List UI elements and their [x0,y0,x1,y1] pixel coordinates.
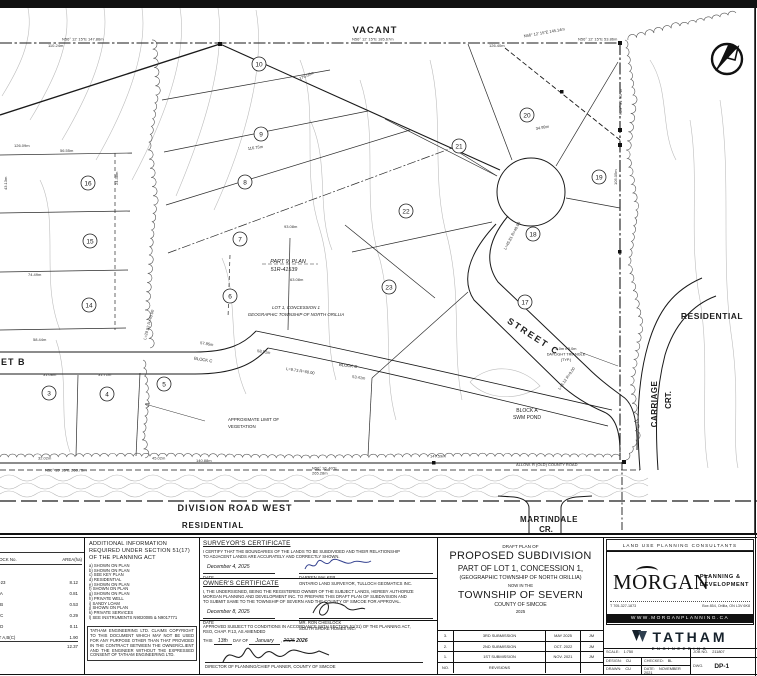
morgan-address: Box 854, Orillia, ON L3V 6K8 [702,604,750,608]
owner-body-2: MORGAN PLANNING AND DEVELOPMENT INC. TO … [203,594,407,599]
dimension-label: N56° 12' 15"E 185.67m [352,37,394,42]
revision-header-row: NO. REVISIONS [438,663,603,674]
street-b-label: STREET B [0,357,26,367]
lot-number-label: 21 [455,143,463,150]
revision-date: NOV. 2021 [546,652,581,662]
morgan-logo-box: MORGAN PLANNING & DEVELOPMENT T 705-327-… [606,551,754,625]
dimension-label: 31.71m [98,372,112,377]
certificates-panel: SURVEYOR'S CERTIFICATE I CERTIFY THAT TH… [200,538,438,674]
surveyor-body-1: I CERTIFY THAT THE BOUNDARIES OF THE LAN… [203,549,400,554]
revision-no-header: NO. [438,663,454,674]
revision-desc-header: REVISIONS [454,663,546,674]
dimension-label: 56.55m [60,148,74,153]
area-row-label: BLOCK C [0,613,3,618]
dimension-label: 43.13m [3,176,8,190]
revision-desc: 3RD SUBMISSION [454,631,546,641]
area-table-header: LOT/BLOCK No. AREA(ha) [0,557,82,565]
morgan-logo: MORGAN [613,570,709,595]
title-line-1: DRAFT PLAN OF [438,544,603,549]
approval-this: THIS [203,638,213,643]
north-arrow-icon [712,44,742,74]
vacant-label: VACANT [353,25,398,36]
lot-number-label: 9 [259,131,263,138]
revision-date: OCT. 2022 [546,642,581,652]
dimension-label: 126.40m [489,43,505,48]
martindale-cr-label: CR. [539,525,553,533]
dimension-label: L=45.81 R=40.00 [502,220,521,250]
area-row: BLOCK C0.29 [0,613,78,618]
planning-consultants-band: LAND USE PLANNING CONSULTANTS [606,539,754,551]
lot-number-label: 8 [243,179,247,186]
lot-number-label: 19 [595,174,603,181]
road-contour-texture [0,475,648,497]
revision-no: 3. [438,631,454,641]
map-text-labels: VACANT STREET B STREET C DIVISION ROAD W… [0,25,743,533]
morgan-phone: T 705-327-1873 [610,604,636,608]
title-line-3: PART OF LOT 1, CONCESSION 1, [438,564,603,573]
scale-label: SCALE: [606,650,620,654]
lot-number-label: 18 [529,231,537,238]
residential-east-label: RESIDENTIAL [681,311,743,321]
checked-cell: CHECKED: BL [642,658,691,666]
revision-desc: 2ND SUBMISSION [454,642,546,652]
area-row-value: 0.53 [69,602,78,607]
scale-cell: SCALE: 1:750 [604,649,691,658]
lot-number-label: 15 [86,238,94,245]
revision-by-header [581,663,602,674]
area-row: LOTS 1-238.12 [0,580,78,585]
area-table-topline [0,552,85,553]
drawn-label: DRAWN: [606,667,621,671]
title-line-2: PROPOSED SUBDIVISION [438,550,603,562]
morgan-website: WWW.MORGANPLANNING.CA [607,614,753,624]
dimension-label: N56° 12' 15"E 147.86m [62,37,104,42]
lot-number-label: 20 [523,112,531,119]
dimension-label: 34.99m [535,124,550,131]
title-line-4: (GEOGRAPHIC TOWNSHIP OF NORTH ORILLIA) [438,575,603,581]
owner-title: OWNER'S CERTIFICATE [203,580,434,587]
title-block: LOT/BLOCK No. AREA(ha) LOTS 1-238.12 BLO… [0,533,757,676]
dimension-label: L=9.73 R=60.00 [286,366,316,376]
area-row-value: 0.11 [70,624,78,629]
daylight-label-1: 5.0m x 5.0m [556,347,577,351]
additional-info-panel: ADDITIONAL INFORMATION REQUIRED UNDER SE… [85,538,200,674]
area-row: BLOCK B0.53 [0,602,78,607]
dimension-label: 24.38m [114,171,119,185]
dimension-label: 63.08m [290,277,304,282]
morgan-tag-1: PLANNING & [700,574,749,582]
lot-number-label: 17 [521,299,529,306]
morgan-tag-2: DEVELOPMENT [700,582,749,590]
surveyor-signature [303,557,373,573]
job-no-value: 211807 [712,650,724,654]
dwg-cell: DWG. DP-1 [691,658,757,674]
plan-map: N56° 12' 15"E 147.86m110.24mN56° 12' 15"… [0,0,757,533]
dimension-label: 110.24m [48,43,64,48]
lot-number-label: 23 [385,284,393,291]
dimension-label: L=29.52 R=40.00 [142,308,155,340]
area-col-area: AREA(ha) [62,557,82,562]
area-row-value: 8.12 [69,580,78,585]
checked-label: CHECKED: [644,659,664,663]
approval-body: APPROVED SUBJECT TO CONDITIONS IN ACCORD… [203,624,434,635]
carriage-crt-label: CRT. [664,391,673,409]
dimension-label: 116.75m [247,144,263,151]
lot-number-label: 22 [402,208,410,215]
martindale-label: MARTINDALE [520,515,578,524]
dimension-label: 53.41m [352,374,367,381]
lot-number-label: 14 [85,302,93,309]
area-col-lot: LOT/BLOCK No. [0,557,17,562]
surveyor-date-line [203,573,275,574]
dimension-label: 265.28m [312,471,328,476]
surveyor-certificate: SURVEYOR'S CERTIFICATE I CERTIFY THAT TH… [203,540,434,583]
vegetation-label-1: APPROXIMATE LIMIT OF [228,417,279,422]
revisions-table: 3. 3RD SUBMISSION MAY 2025 JM 2. 2ND SUB… [438,630,603,674]
revision-row: 2. 2ND SUBMISSION OCT. 2022 JM [438,642,603,653]
lot-numbers: 34567891014151617181920212223 [42,57,606,401]
vegetation-label-2: VEGETATION [228,424,256,429]
info-item: l) SEE INSTRUMENTS N9020085 & N9017771 [89,616,196,621]
drawing-title-panel: DRAFT PLAN OF PROPOSED SUBDIVISION PART … [438,538,603,674]
survey-markers [218,41,626,465]
revision-date-header [546,663,581,674]
cert-divider-2 [200,620,437,621]
dimension-label: ALLOW. R (OLD) COUNTY ROAD [516,462,578,467]
approval-dayof: DAY OF [233,638,248,643]
surveyor-sig-line [299,573,433,574]
approval-comma: , [281,638,282,643]
revision-no: 1. [438,652,454,662]
date-cell: DATE: NOVEMBER 2021 [642,666,691,674]
dimension-label: 105.05m [613,169,618,185]
approval-sig-title: DIRECTOR OF PLANNING/CHIEF PLANNER, COUN… [205,664,336,669]
area-row: STREET A,B(C)1.90 [0,635,78,642]
copyright-note: TATHAM ENGINEERING LTD. CLAIMS COPYRIGHT… [87,626,197,661]
dimension-label: 57.85m [200,340,215,347]
morgan-tagline: PLANNING & DEVELOPMENT [700,574,749,589]
dimension-label: 126.09m [14,143,30,148]
surveyor-date: December 4, 2025 [207,564,250,570]
owner-body-1: I, THE UNDERSIGNED, BEING THE REGISTERED… [203,589,414,594]
daylight-label-3: (TYP.) [561,358,572,362]
cul-de-sac-bulb [497,158,565,226]
area-table-panel: LOT/BLOCK No. AREA(ha) LOTS 1-238.12 BLO… [0,538,85,674]
job-info-table: SCALE: 1:750 JOB NO. 211807 DESIGN: CU C… [604,648,757,674]
road-texture-line [0,483,648,489]
block-c-label-1: BLOCK C [194,356,213,364]
scale-value: 1:750 [624,650,634,654]
drawing-sheet: N56° 12' 15"E 147.86m110.24mN56° 12' 15"… [0,0,757,676]
lot-number-label: 10 [255,61,263,68]
area-row-label: LOTS 1-23 [0,580,5,585]
dimension-label: 147.59m [430,454,446,459]
street-c-label: STREET C [506,316,562,357]
approval-line-2: RSO, CHAP. P.13, AS AMENDED [203,629,265,634]
lot-number-label: 4 [105,391,109,398]
lot-number-label: 16 [84,180,92,187]
design-label: DESIGN: [606,659,622,663]
approval-sig-line [205,662,423,663]
revision-desc: 1ST SUBMISSION [454,652,546,662]
job-no-label: JOB NO. [693,650,708,654]
area-row-label: BLOCK A [0,591,3,596]
cert-divider-1 [200,578,437,579]
sheet-border-bottom [0,674,757,675]
additional-info-title: ADDITIONAL INFORMATION REQUIRED UNDER SE… [89,541,196,562]
title-line-7: COUNTY OF SIMCOE [438,602,603,608]
dimension-label: 74.49m [28,272,42,277]
boundary-lines [0,43,757,530]
owner-certificate: OWNER'S CERTIFICATE I, THE UNDERSIGNED, … [203,580,434,628]
dimension-label: 58.91m [257,348,272,355]
dimension-label: 140.88m [196,458,212,463]
design-value: CU [626,659,631,663]
dwg-value: DP-1 [714,663,729,670]
drawn-value: CU [625,667,630,671]
road-texture-line [0,491,648,497]
owner-date: December 8, 2025 [207,609,250,615]
design-cell: DESIGN: CU [604,658,642,666]
dimension-label: L=8.12 R=9.00 [557,365,577,390]
revision-by: JM [581,631,602,641]
surveyor-title: SURVEYOR'S CERTIFICATE [203,540,434,547]
revision-date: MAY 2025 [546,631,581,641]
lot-number-label: 5 [162,381,166,388]
dimension-label: 31.08m [43,372,57,377]
approval-line-1: APPROVED SUBJECT TO CONDITIONS IN ACCORD… [203,624,411,629]
dimension-label: N56° 12' 15"E 145.14m [523,26,565,38]
area-row-label: STREET A,B(C) [0,635,15,640]
carriage-label: CARRIAGE [650,381,659,428]
drawn-cell: DRAWN: CU [604,666,642,674]
lot-lines [0,44,620,456]
approval-block: APPROVED SUBJECT TO CONDITIONS IN ACCORD… [203,622,434,644]
revision-by: JM [581,642,602,652]
revision-by: JM [581,652,602,662]
dimension-label: 93.08m [284,224,298,229]
dimension-label: N56° 12' 15"E 53.86m [578,37,618,42]
consultants-panel: LAND USE PLANNING CONSULTANTS MORGAN PLA… [603,538,757,674]
part9-label-2: 51R-41539 [271,267,298,273]
block-a-label-2: SWM POND [513,415,541,421]
morgan-contact-row: T 705-327-1873 Box 854, Orillia, ON L3V … [610,601,750,608]
residential-south-label: RESIDENTIAL [182,521,244,530]
revision-row: 1. 1ST SUBMISSION NOV. 2021 JM [438,652,603,663]
tatham-logo-icon [632,630,648,644]
lot1-label-1: LOT 1, CONCESSION 1 [272,305,320,310]
area-row: BLOCK A0.81 [0,591,78,596]
additional-info-items: a) SHOWN ON PLANb) SHOWN ON PLANc) SEE K… [89,564,196,620]
area-total-row: 12.37 [0,644,78,649]
lot1-label-2: GEOGRAPHIC TOWNSHIP OF NORTH ORILLIA [248,312,345,317]
owner-body-3: TO SUBMIT SAME TO THE TOWNSHIP OF SEVERN… [203,599,401,604]
dimension-label: 32.02m [38,456,52,461]
area-row-label: BLOCK D [0,624,3,629]
road-texture-line [0,475,648,481]
area-row: BLOCK D0.11 [0,624,78,629]
title-line-6: TOWNSHIP OF SEVERN [438,589,603,601]
street-edges [0,158,716,533]
area-row-value: 0.81 [69,591,78,596]
title-line-5: NOW IN THE [438,583,603,588]
area-row-value: 0.29 [69,613,78,618]
dimension-label: 58.44m [33,337,47,342]
dwg-label: DWG. [693,664,703,668]
block-c-label-2: BLOCK C [339,362,358,369]
owner-signature [311,599,367,618]
title-line-8: 2025 [438,609,603,614]
job-no-cell: JOB NO. 211807 [691,649,757,658]
block-a-label-1: BLOCK A [516,408,538,414]
revision-no: 2. [438,642,454,652]
dimension-label: 45.02m [152,456,166,461]
division-road-label: DIVISION ROAD WEST [177,503,292,513]
lot-number-label: 6 [228,293,232,300]
sheet-border-right [755,8,756,676]
dimension-label: N29° 31' 30"W [618,89,623,115]
lot-number-label: 3 [47,390,51,397]
checked-value: BL [668,659,673,663]
dimension-label: N56° 15' 15"E 268.75m [45,468,87,473]
part9-label-1: PART 9, PLAN [270,259,306,265]
daylight-label-2: DAYLIGHT TRIANGLE [547,353,586,357]
dimension-label: 176.09m [298,70,315,81]
lot-number-label: 7 [238,236,242,243]
tatham-logo: TATHAM [652,629,727,645]
area-row-label: BLOCK B [0,602,3,607]
revision-row: 3. 3RD SUBMISSION MAY 2025 JM [438,631,603,642]
area-row-value: 1.90 [69,635,78,640]
area-total-value: 12.37 [67,644,78,649]
